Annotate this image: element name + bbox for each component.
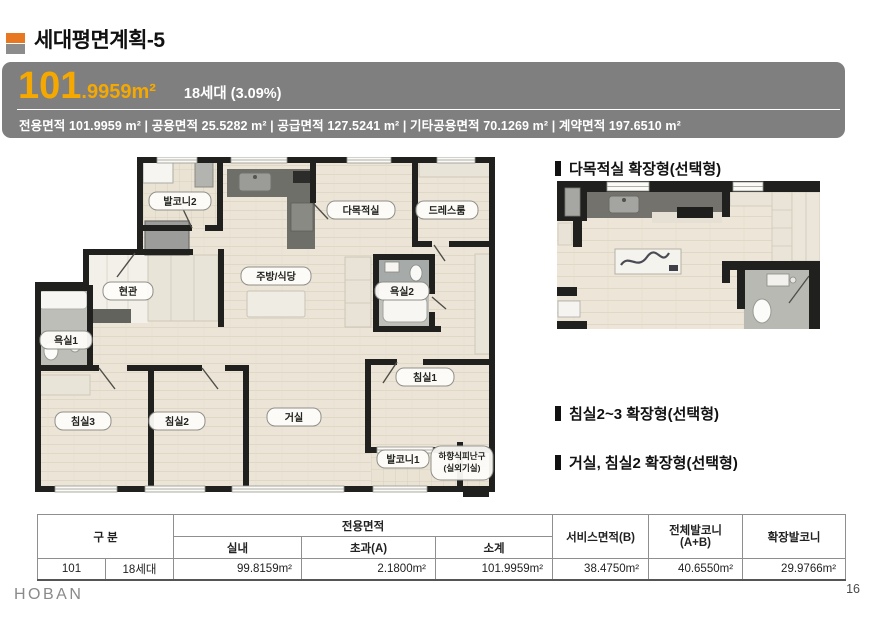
table-row: 101 18세대 99.8159m² 2.1800m² 101.9959m² 3… — [38, 559, 846, 580]
option-text: 침실2~3 확장형(선택형) — [569, 403, 719, 424]
svg-text:다목적실: 다목적실 — [343, 204, 380, 217]
unit-area-line: 101 .9959m² 18세대 (3.09%) — [18, 65, 282, 107]
hoban-logo: HOBAN — [14, 586, 83, 604]
svg-text:주방/식당: 주방/식당 — [256, 270, 296, 283]
table-header-exclusive-area: 전용면적 — [174, 515, 553, 537]
cell-total-balcony-area: 40.6550m² — [649, 559, 743, 580]
svg-text:침실1: 침실1 — [413, 371, 437, 384]
room-label-bath2: 욕실2 — [375, 282, 429, 300]
svg-text:욕실1: 욕실1 — [54, 334, 78, 347]
unit-household-count: 18세대 (3.09%) — [184, 82, 282, 103]
detail-bathroom — [744, 270, 812, 329]
svg-text:욕실2: 욕실2 — [390, 285, 414, 298]
room-label-balcony2: 발코니2 — [149, 192, 211, 210]
table-header-extended-balcony: 확장발코니 — [743, 515, 846, 559]
area-summary-table: 구 분 전용면적 서비스면적(B) 전체발코니 (A+B) 확장발코니 실내 초… — [37, 514, 846, 581]
room-label-dressroom: 드레스룸 — [416, 201, 478, 219]
cell-excess-area: 2.1800m² — [302, 559, 436, 580]
cell-extended-balcony-area: 29.9766m² — [743, 559, 846, 580]
room-label-bed2: 침실2 — [149, 412, 205, 430]
page-number: 16 — [846, 582, 860, 596]
option-bullet-bar-icon — [555, 455, 561, 470]
cell-indoor-area: 99.8159m² — [174, 559, 302, 580]
title-bullet-orange-square — [6, 33, 25, 43]
svg-text:하향식피난구: 하향식피난구 — [439, 451, 486, 461]
svg-text:(실외기실): (실외기실) — [444, 463, 481, 473]
unit-summary-header: 101 .9959m² 18세대 (3.09%) 전용면적 101.9959 m… — [2, 62, 845, 138]
table-header-total-balcony: 전체발코니 (A+B) — [649, 515, 743, 559]
cell-unit-type: 101 — [38, 559, 106, 580]
slide-title-row: 세대평면계획-5 — [6, 29, 165, 54]
option-text: 다목적실 확장형(선택형) — [569, 158, 721, 179]
svg-text:현관: 현관 — [119, 285, 138, 298]
table-header-service-area: 서비스면적(B) — [553, 515, 649, 559]
option-bullet-bar-icon — [555, 161, 561, 176]
main-floorplan: 발코니2 다목적실 드레스룸 주방/식당 현관 욕실2 욕실1 침실1 — [35, 157, 495, 498]
cell-subtotal-area: 101.9959m² — [436, 559, 553, 580]
room-label-living: 거실 — [267, 408, 321, 426]
svg-text:침실3: 침실3 — [71, 415, 95, 428]
table-header-category: 구 분 — [38, 515, 174, 559]
page-title: 세대평면계획-5 — [34, 29, 165, 53]
option-label-living-bed2-expansion: 거실, 침실2 확장형(선택형) — [555, 452, 738, 473]
option-bullet-bar-icon — [555, 406, 561, 421]
room-label-entrance: 현관 — [103, 282, 153, 300]
unit-area-detail-line: 전용면적 101.9959 m² | 공용면적 25.5282 m² | 공급면… — [19, 115, 681, 134]
option-text: 거실, 침실2 확장형(선택형) — [569, 452, 738, 473]
table-header-indoor: 실내 — [174, 537, 302, 559]
room-label-bed3: 침실3 — [55, 412, 111, 430]
svg-text:드레스룸: 드레스룸 — [429, 204, 466, 217]
title-bullet-icon — [6, 33, 25, 54]
title-bullet-gray-square — [6, 44, 25, 54]
detail-floorplan — [557, 181, 820, 329]
option-label-bed23-expansion: 침실2~3 확장형(선택형) — [555, 403, 719, 424]
room-label-balcony1: 발코니1 — [377, 450, 429, 468]
svg-text:침실2: 침실2 — [165, 415, 189, 428]
svg-text:발코니2: 발코니2 — [163, 195, 197, 208]
room-label-escape: 하향식피난구 (실외기실) — [431, 446, 493, 480]
cell-service-area: 38.4750m² — [553, 559, 649, 580]
svg-text:거실: 거실 — [285, 411, 303, 424]
cell-unit-count: 18세대 — [106, 559, 174, 580]
header-divider-line — [17, 109, 840, 110]
svg-text:발코니1: 발코니1 — [386, 453, 420, 466]
room-label-bed1: 침실1 — [396, 368, 454, 386]
unit-area-main: 101 — [18, 65, 81, 107]
option-label-multipurpose-expansion: 다목적실 확장형(선택형) — [555, 158, 721, 179]
room-label-multipurpose: 다목적실 — [327, 201, 395, 219]
table-header-excess: 초과(A) — [302, 537, 436, 559]
unit-area-frac: .9959m² — [81, 81, 156, 104]
room-label-bath1: 욕실1 — [40, 331, 92, 349]
room-label-kitchen: 주방/식당 — [241, 267, 311, 285]
table-header-subtotal: 소계 — [436, 537, 553, 559]
